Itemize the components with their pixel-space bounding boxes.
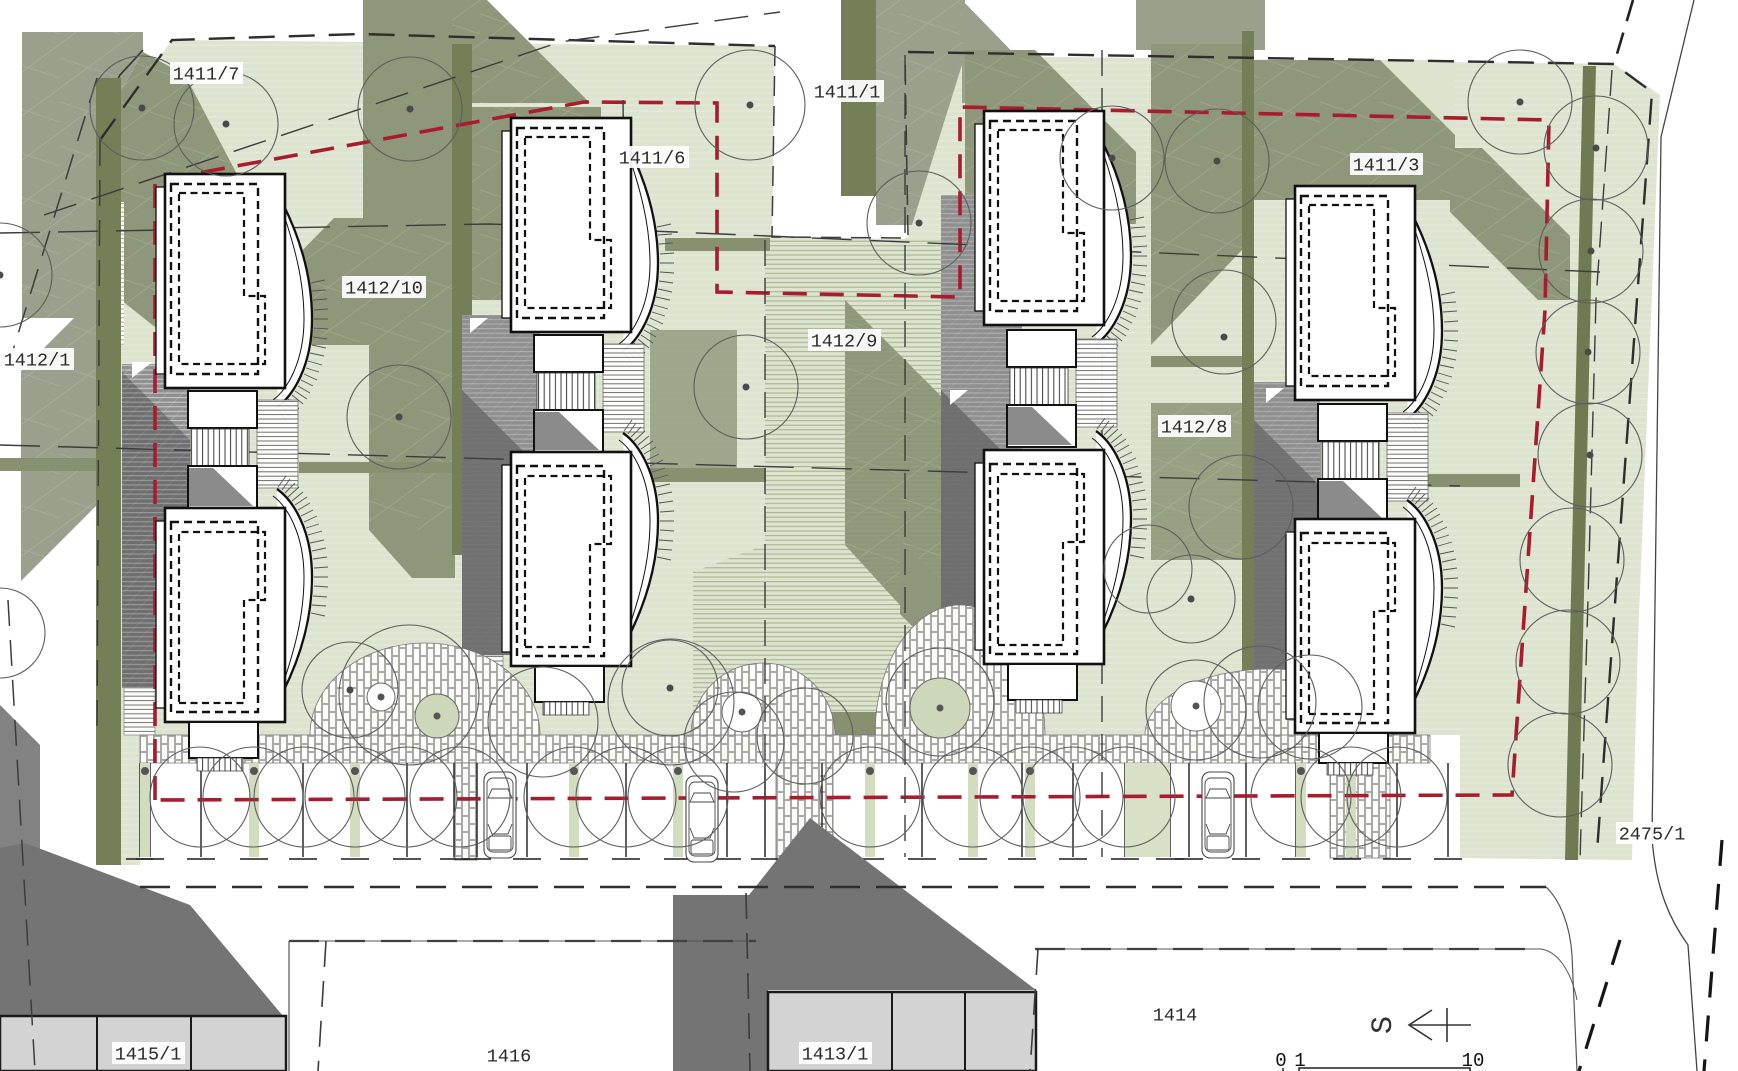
svg-text:1412/10: 1412/10 [345, 279, 423, 300]
svg-text:1415/1: 1415/1 [115, 1045, 182, 1066]
svg-text:1411/6: 1411/6 [619, 149, 686, 170]
svg-text:1412/9: 1412/9 [811, 332, 878, 353]
svg-text:1411/7: 1411/7 [173, 65, 240, 86]
svg-text:S: S [1367, 1016, 1401, 1034]
svg-text:1412/1: 1412/1 [4, 351, 71, 372]
svg-text:1416: 1416 [487, 1047, 531, 1068]
svg-text:2475/1: 2475/1 [1619, 825, 1686, 846]
svg-text:1414: 1414 [1153, 1006, 1197, 1027]
svg-text:1411/3: 1411/3 [1353, 156, 1420, 177]
svg-text:1413/1: 1413/1 [802, 1045, 869, 1066]
svg-text:1411/1: 1411/1 [814, 83, 881, 104]
svg-text:0: 0 [1275, 1050, 1286, 1071]
svg-text:1412/8: 1412/8 [1161, 418, 1228, 439]
